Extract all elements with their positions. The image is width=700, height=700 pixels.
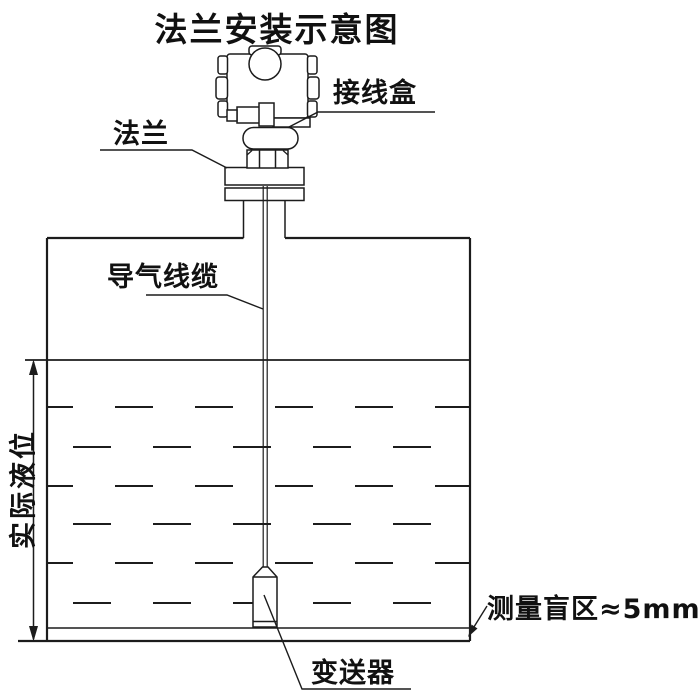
tank-drawing xyxy=(18,238,470,641)
flange-label: 法兰 xyxy=(113,120,169,150)
junction-box-label: 接线盒 xyxy=(333,79,417,109)
actual-level-label: 实际液位 xyxy=(2,429,41,549)
transmitter-head-drawing xyxy=(216,46,319,168)
cable-drawing xyxy=(263,186,267,567)
nozzle-neck-drawing xyxy=(244,200,286,238)
transmitter-label: 变送器 xyxy=(311,659,395,689)
blind-zone-label: 测量盲区≈5mm xyxy=(487,595,700,625)
flange-leader xyxy=(100,150,227,168)
page-title: 法兰安装示意图 xyxy=(155,3,400,51)
flange-installation-diagram: 法兰安装示意图 接线盒 法兰 导气线缆 实际液位 测量盲区≈5mm 变送器 xyxy=(0,0,700,700)
air-cable-label: 导气线缆 xyxy=(107,263,219,293)
air-cable-leader xyxy=(146,295,263,309)
flange-drawing xyxy=(225,168,304,201)
